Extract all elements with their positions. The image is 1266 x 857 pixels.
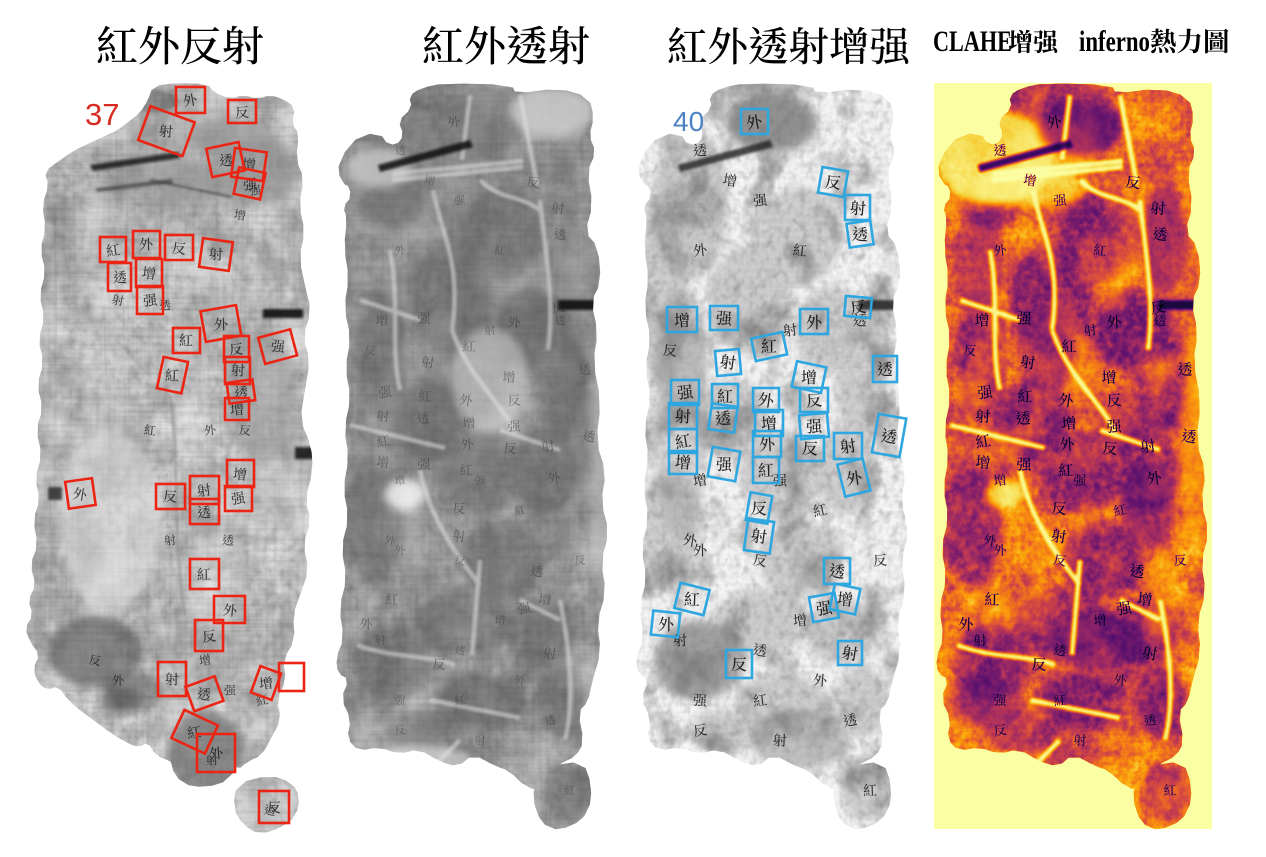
svg-text:inferno: inferno <box>1079 24 1150 58</box>
svg-text:37: 37 <box>85 97 119 132</box>
svg-text:CLAHE: CLAHE <box>933 24 1012 58</box>
svg-text:40: 40 <box>673 106 704 137</box>
